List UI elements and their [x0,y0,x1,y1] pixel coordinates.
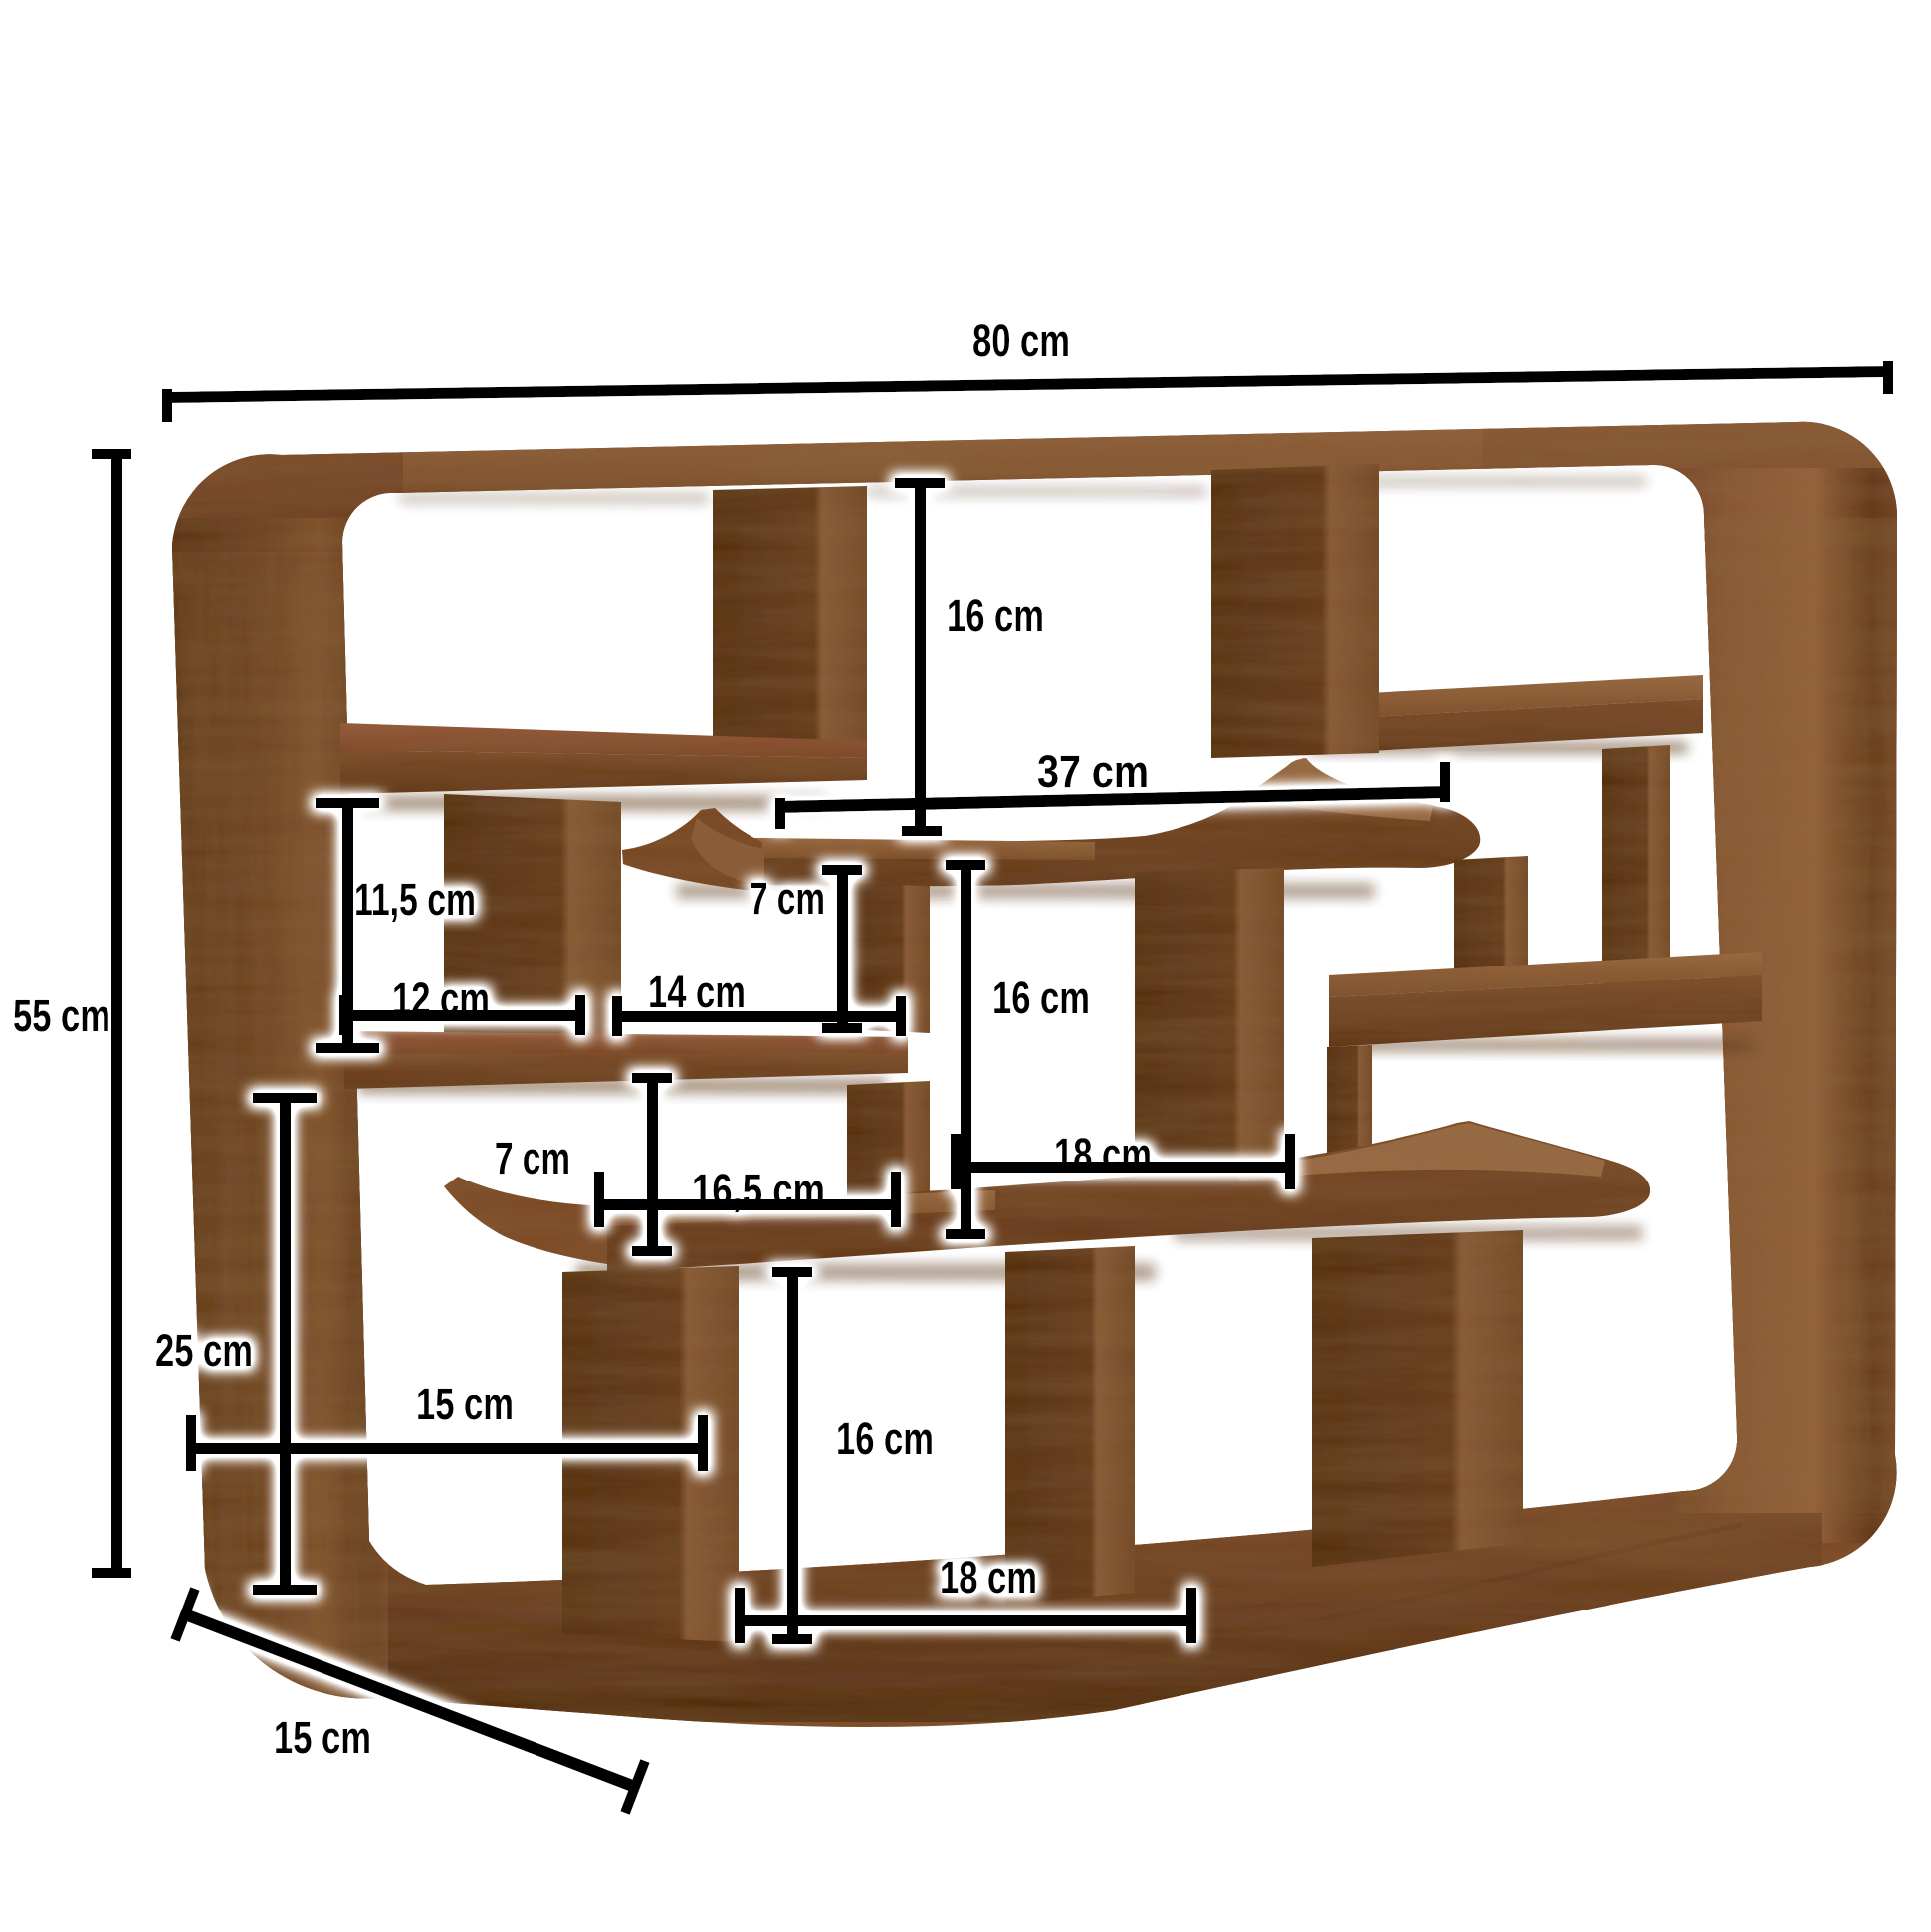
svg-text:16 cm: 16 cm [992,972,1090,1023]
svg-text:18 cm: 18 cm [940,1552,1037,1603]
svg-text:7 cm: 7 cm [750,873,825,924]
svg-text:11,5 cm: 11,5 cm [354,874,476,925]
svg-text:16,5 cm: 16,5 cm [692,1165,825,1215]
svg-text:25 cm: 25 cm [155,1325,253,1376]
svg-text:15 cm: 15 cm [274,1712,371,1763]
svg-text:80 cm: 80 cm [972,316,1070,366]
svg-text:55 cm: 55 cm [13,990,110,1041]
svg-text:18 cm: 18 cm [1054,1129,1152,1180]
svg-text:15 cm: 15 cm [416,1379,514,1429]
svg-text:16 cm: 16 cm [836,1413,934,1464]
svg-text:14 cm: 14 cm [648,966,746,1017]
svg-text:37 cm: 37 cm [1037,747,1149,797]
svg-text:7 cm: 7 cm [495,1133,570,1183]
svg-text:12 cm: 12 cm [392,973,490,1024]
svg-text:16 cm: 16 cm [947,590,1044,641]
